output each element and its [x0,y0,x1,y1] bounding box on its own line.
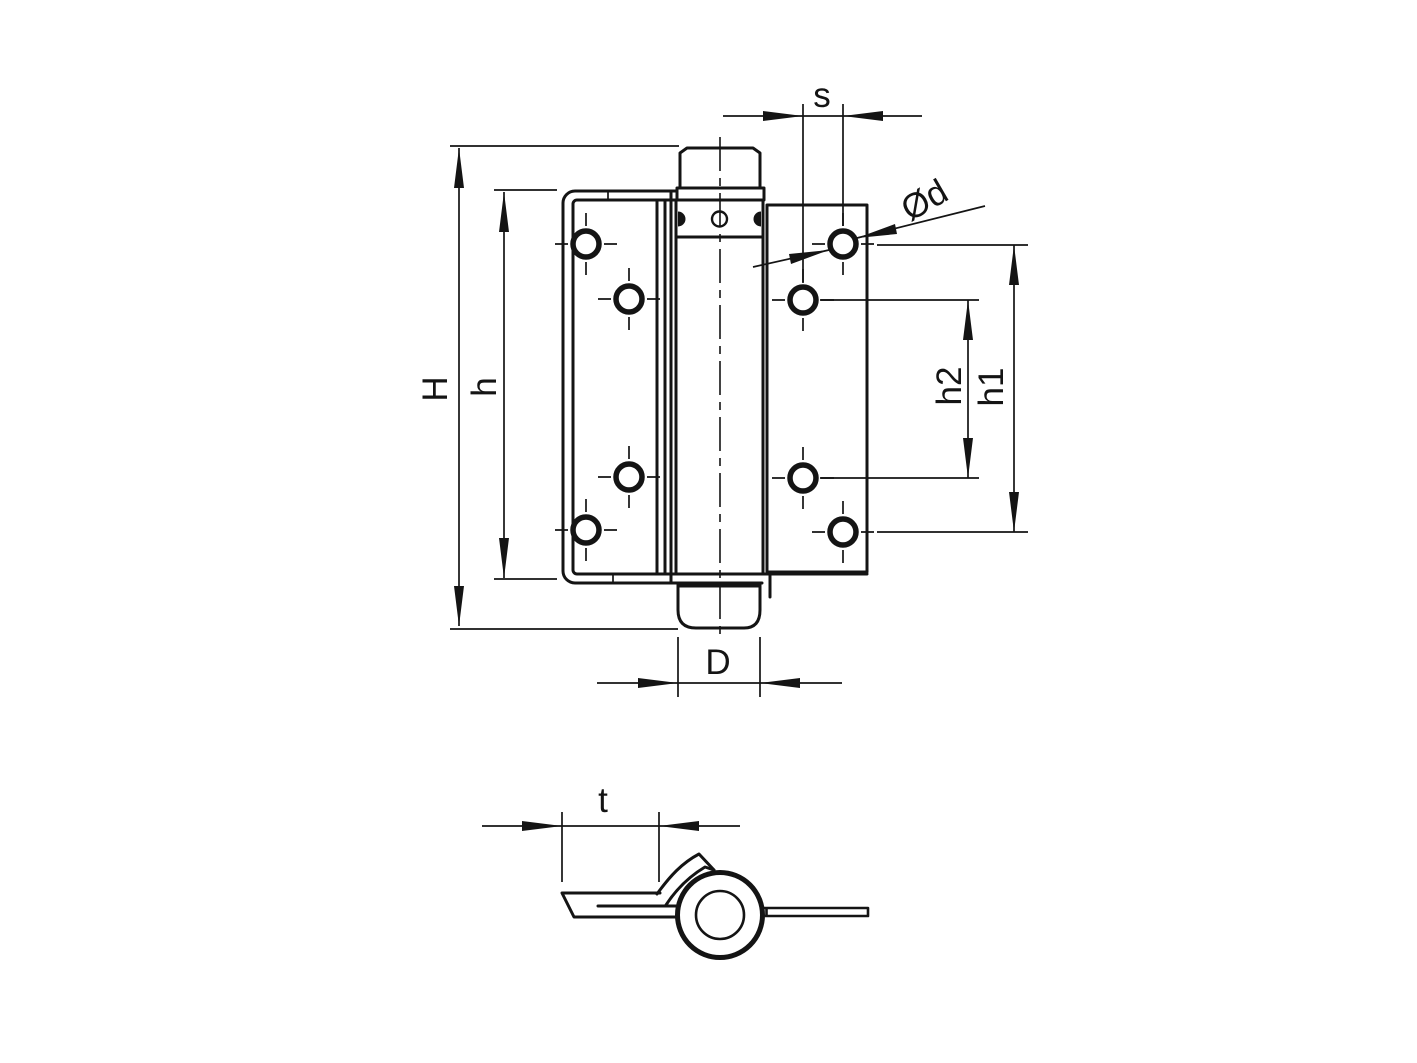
collar-hole-edge-right [754,212,761,227]
D-label: D [705,643,730,682]
technical-drawing-page: H h s Ød [0,0,1417,1063]
H-label: H [416,376,455,401]
screw-hole [830,519,856,545]
H-arrow-down [454,586,464,626]
bottom-pin-cap [678,583,760,628]
dimension-hole-diameter: Ød [753,172,985,267]
spring-hinge-drawing: H h s Ød [0,0,1417,1063]
d-arrow-lower [789,250,829,264]
t-extension-lines [562,812,659,882]
t-arrow-right [522,821,562,831]
h-label: h [465,377,504,396]
t-arrow-left [659,821,699,831]
t-label: t [598,781,608,820]
h2-label: h2 [930,367,969,406]
knuckle-outer-circle [678,873,763,958]
hinge-side-view: t [482,781,868,958]
dimensions-front-view: H h s Ød [416,76,1028,697]
screw-hole [616,464,642,490]
screw-hole [573,231,599,257]
left-plate-screw-holes [555,213,660,561]
d-arrow-upper [857,224,897,238]
screw-hole [573,517,599,543]
dimension-h2: h2 [820,300,979,478]
collar-hole-edge-left [678,212,686,227]
right-plate-screw-holes [772,213,874,563]
D-arrow-right [638,678,678,688]
h-arrow-down [499,538,509,578]
h2-arrow-up [963,300,973,340]
h-arrow-up [499,192,509,232]
h1-arrow-up [1009,245,1019,285]
screw-hole [790,287,816,313]
h1-arrow-down [1009,492,1019,532]
screw-hole [830,231,856,257]
left-plate-band-ticks [608,191,613,583]
h1-label: h1 [972,368,1011,407]
dimension-t: t [482,781,740,882]
left-leaf-plate [555,191,867,583]
dimension-H: H [416,146,679,629]
spring-barrel [676,137,764,640]
d-label: Ød [895,172,955,229]
s-arrow-right [763,111,803,121]
side-leaf-outline [562,893,679,917]
side-second-leaf-strip [763,908,868,916]
dimension-h: h [465,190,557,579]
right-leaf-plate [767,205,874,597]
left-plate-fold-lines [657,191,671,583]
s-arrow-left [843,111,883,121]
D-arrow-left [760,678,800,688]
s-label: s [813,76,831,115]
dimension-D: D [597,637,842,697]
screw-hole [616,286,642,312]
hinge-front-view: H h s Ød [416,76,1028,697]
screw-hole [790,465,816,491]
H-arrow-up [454,148,464,188]
h2-arrow-down [963,438,973,478]
